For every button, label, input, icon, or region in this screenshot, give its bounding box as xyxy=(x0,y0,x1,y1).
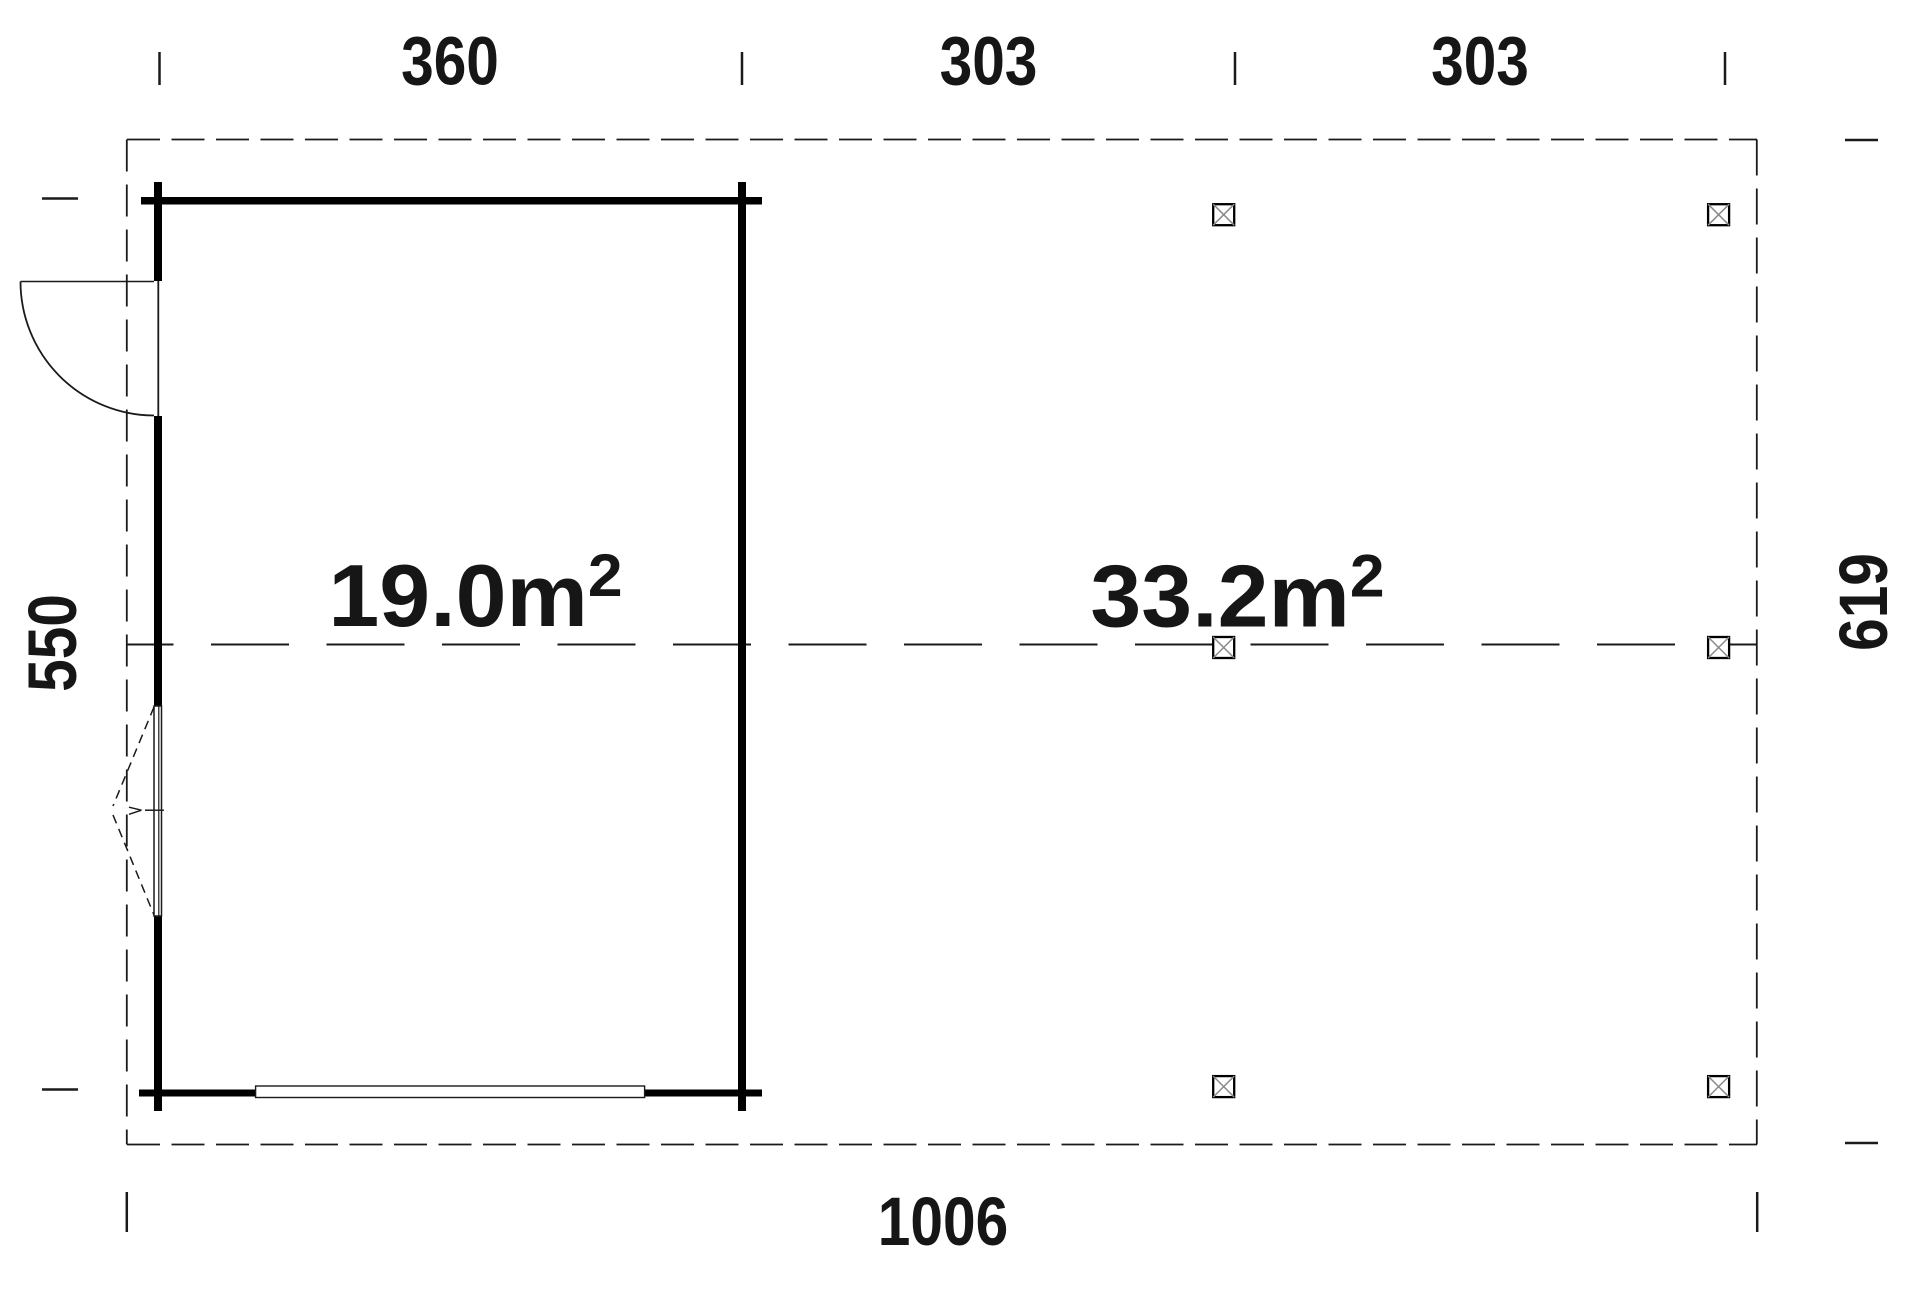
svg-text:33.2m2: 33.2m2 xyxy=(1090,543,1384,647)
svg-text:303: 303 xyxy=(1431,22,1529,100)
svg-text:1006: 1006 xyxy=(878,1183,1008,1261)
svg-text:619: 619 xyxy=(1825,553,1903,651)
svg-text:19.0m2: 19.0m2 xyxy=(328,542,622,646)
svg-text:360: 360 xyxy=(401,22,499,100)
svg-text:550: 550 xyxy=(14,594,92,692)
svg-text:303: 303 xyxy=(940,22,1038,100)
